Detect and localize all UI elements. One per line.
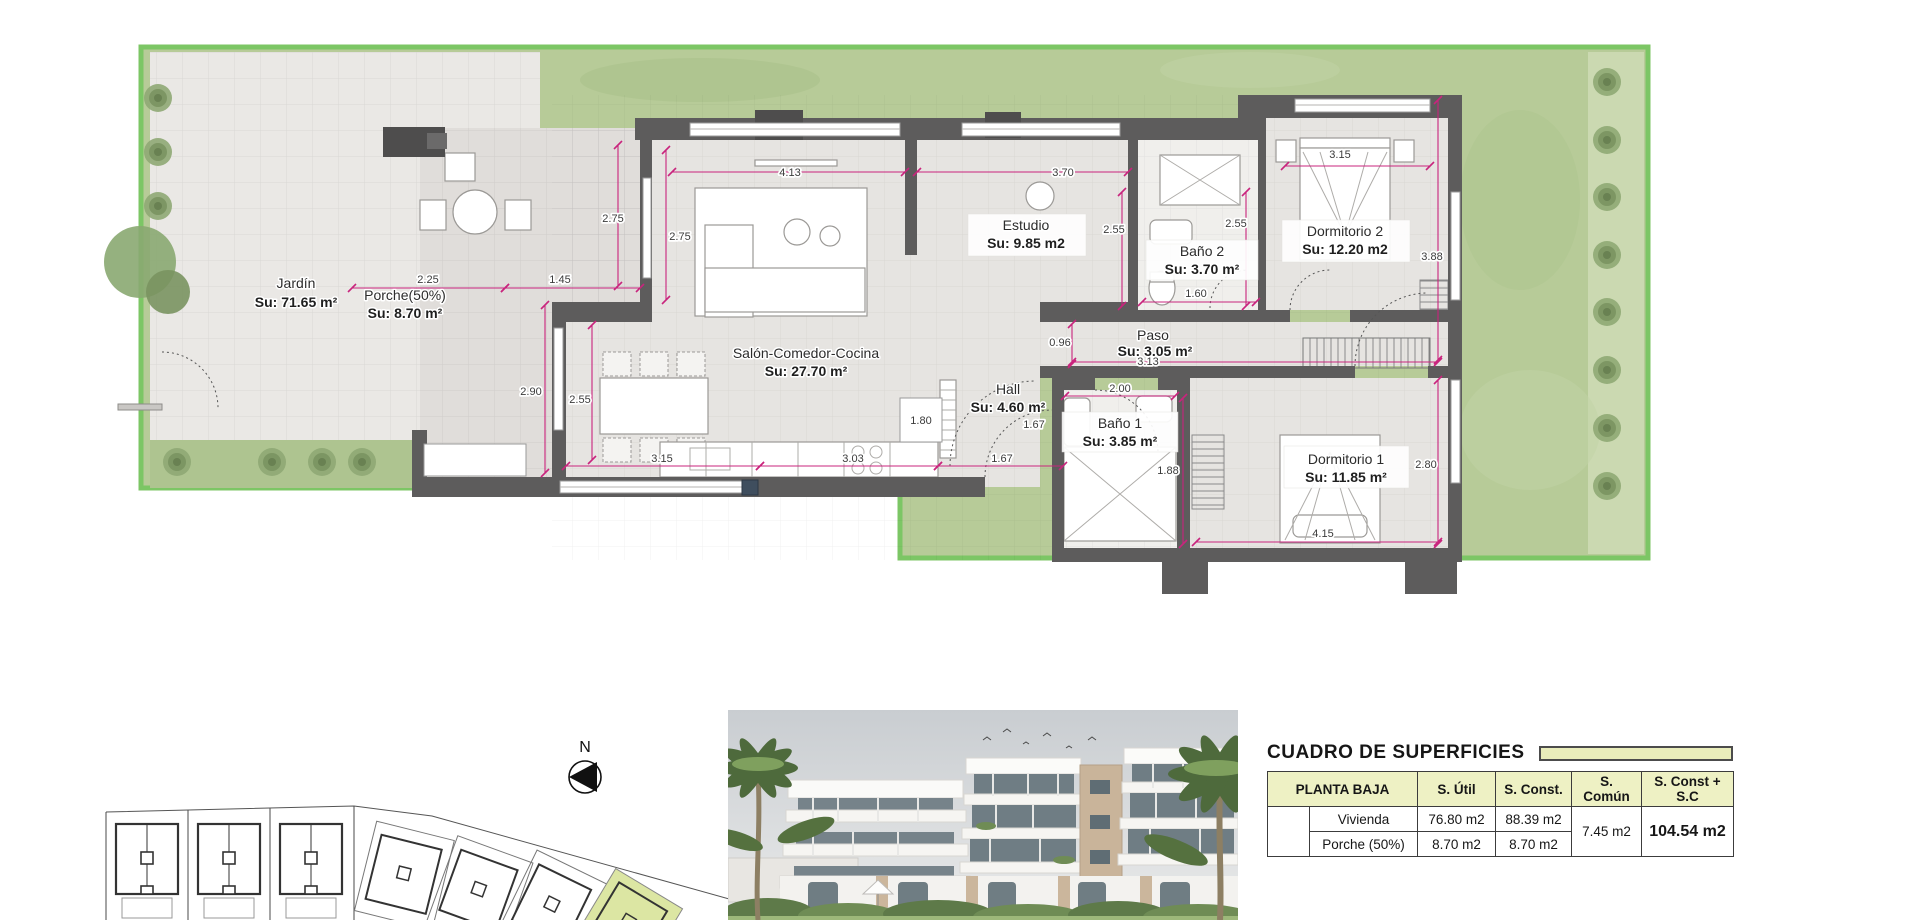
surface-table: CUADRO DE SUPERFICIES PLANTA BAJA S. Úti… [1267,742,1733,857]
tv-unit [755,160,837,166]
radiator [1420,280,1448,310]
total-value: 104.54 m2 [1642,807,1734,857]
site-plan: N [100,700,740,920]
col-header-s-util: S. Útil [1418,772,1496,807]
dim-label: 2.55 [1103,224,1124,236]
room-area: Su: 3.05 m² [1118,343,1193,359]
dim-label: 3.70 [1052,167,1073,179]
title-bar [1539,746,1733,761]
room-name: Porche(50%) [364,287,446,303]
row-util-value: 8.70 m2 [1418,832,1496,857]
wardrobe-1 [1192,435,1224,509]
room-area: Su: 11.85 m² [1305,469,1387,485]
row-label: Vivienda [1310,807,1418,832]
room-name: Estudio [1003,217,1050,233]
dim-label: 4.13 [779,167,800,179]
dim-label: 1.60 [1185,288,1206,300]
surface-table-grid: PLANTA BAJA S. Útil S. Const. S. Común S… [1267,771,1734,857]
room-area: Su: 71.65 m² [255,294,338,310]
studio-chair [1026,182,1054,210]
room-area: Su: 4.60 m² [971,399,1046,415]
row-spacer-cell [1268,807,1310,857]
north-label: N [579,739,591,756]
garden-gate [118,404,162,410]
wardrobe-paso [1303,338,1430,368]
table-header-row: PLANTA BAJA S. Útil S. Const. S. Común S… [1268,772,1734,807]
row-const-value: 8.70 m2 [1496,832,1572,857]
building-render [728,710,1238,920]
dim-label: 2.00 [1109,383,1130,395]
floor-plan: 4.13 3.70 3.15 2.75 2.75 2.25 1.45 2.90 … [0,0,1920,620]
porch-table [453,190,497,234]
dining-table [600,378,708,434]
apartment-block-center [960,758,1082,873]
row-util-value: 76.80 m2 [1418,807,1496,832]
room-area: Su: 9.85 m2 [987,235,1065,251]
col-header-s-total: S. Const + S.C [1642,772,1734,807]
room-name: Hall [996,381,1020,397]
room-name: Baño 2 [1180,243,1225,259]
col-header-s-comun: S. Común [1572,772,1642,807]
dim-label: 2.75 [602,213,623,225]
room-name: Dormitorio 1 [1308,451,1384,467]
room-area: Su: 8.70 m² [368,305,443,321]
room-name: Baño 1 [1098,415,1143,431]
floorplan-page: 4.13 3.70 3.15 2.75 2.75 2.25 1.45 2.90 … [0,0,1920,920]
dim-label: 3.03 [842,453,863,465]
site-units-fan [354,821,682,920]
table-title: CUADRO DE SUPERFICIES [1267,742,1525,764]
dim-label: 2.55 [1225,218,1246,230]
table-row: Vivienda 76.80 m2 88.39 m2 7.45 m2 104.5… [1268,807,1734,832]
row-const-value: 88.39 m2 [1496,807,1572,832]
dim-label: 2.25 [417,274,438,286]
kitchen-counter [660,442,938,477]
utility-box [742,480,758,495]
room-name: Dormitorio 2 [1307,223,1383,239]
dim-label: 2.90 [520,386,541,398]
dim-label: 3.88 [1421,251,1442,263]
comun-value: 7.45 m2 [1572,807,1642,857]
dim-label: 1.88 [1157,465,1178,477]
north-arrow-icon: N [569,739,601,793]
dim-label: 2.55 [569,394,590,406]
site-units-row [116,824,342,918]
dim-label: 2.75 [669,231,690,243]
dim-label: 1.45 [549,274,570,286]
dim-label: 4.15 [1312,528,1333,540]
room-area: Su: 3.85 m² [1083,433,1158,449]
surface-table-header: CUADRO DE SUPERFICIES [1267,742,1733,764]
dim-label: 0.96 [1049,337,1070,349]
col-header-planta-baja: PLANTA BAJA [1268,772,1418,807]
col-header-s-const: S. Const. [1496,772,1572,807]
room-area: Su: 12.20 m2 [1302,241,1388,257]
room-area: Su: 3.70 m² [1165,261,1240,277]
dim-label: 3.15 [651,453,672,465]
row-label: Porche (50%) [1310,832,1418,857]
room-name: Salón-Comedor-Cocina [733,345,880,361]
dim-label: 2.80 [1415,459,1436,471]
room-name: Paso [1137,327,1169,343]
dim-label: 1.67 [1023,419,1044,431]
room-area: Su: 27.70 m² [765,363,848,379]
dim-label: 1.80 [910,415,931,427]
room-name: Jardín [277,275,316,291]
dim-label: 1.67 [991,453,1012,465]
dim-label: 3.15 [1329,149,1350,161]
sofa [705,268,865,312]
